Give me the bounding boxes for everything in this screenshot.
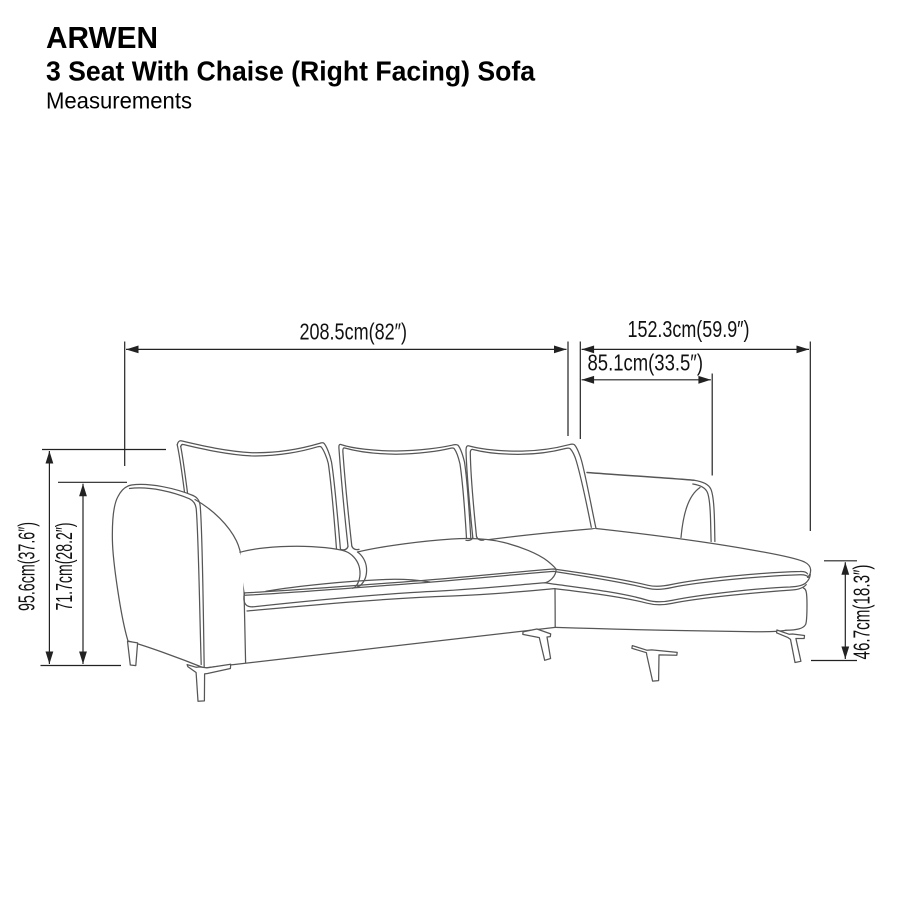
svg-text:ARWEN: ARWEN bbox=[46, 20, 158, 55]
svg-text:3 Seat With Chaise (Right Faci: 3 Seat With Chaise (Right Facing) Sofa bbox=[46, 56, 535, 87]
svg-text:208.5cm(82″): 208.5cm(82″) bbox=[300, 319, 408, 345]
svg-text:46.7cm(18.3″): 46.7cm(18.3″) bbox=[849, 565, 875, 660]
svg-text:95.6cm(37.6″): 95.6cm(37.6″) bbox=[14, 522, 40, 611]
svg-text:Measurements: Measurements bbox=[46, 88, 192, 114]
svg-text:85.1cm(33.5″): 85.1cm(33.5″) bbox=[588, 350, 704, 376]
svg-text:71.7cm(28.2″): 71.7cm(28.2″) bbox=[51, 523, 77, 611]
svg-text:152.3cm(59.9″): 152.3cm(59.9″) bbox=[628, 316, 750, 342]
